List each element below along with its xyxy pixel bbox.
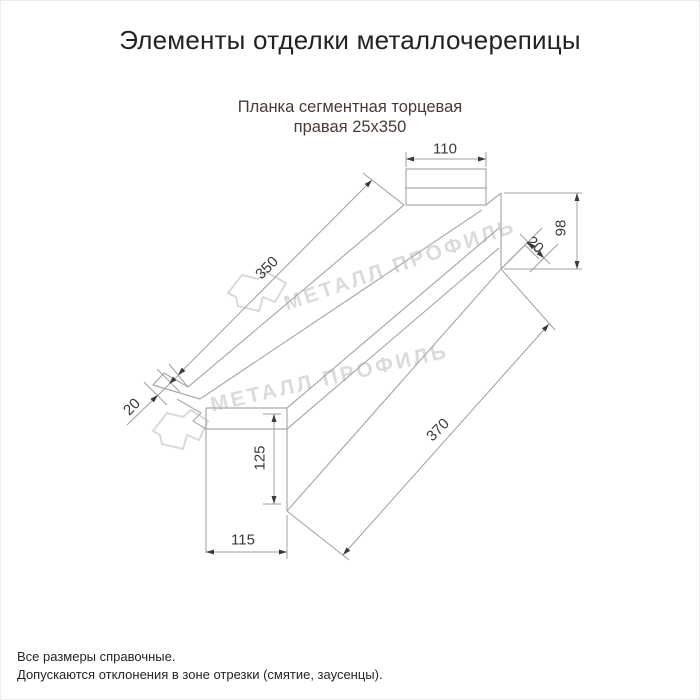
drawing-sheet: Элементы отделки металлочерепицы Планка … (0, 0, 700, 700)
footer-notes: Все размеры справочные. Допускаются откл… (17, 648, 383, 684)
footer-note-1: Все размеры справочные. (17, 648, 383, 666)
dim-right-end-height-label: 98 (553, 220, 570, 237)
dimension-lines (127, 152, 582, 560)
dim-left-end-height-label: 125 (252, 445, 269, 470)
watermark-logo-upper-icon (228, 272, 286, 311)
watermark-logo-lower-icon (153, 410, 208, 449)
dim-top-flange-width-label: 110 (433, 141, 457, 158)
technical-drawing (1, 1, 700, 700)
strip-outline (153, 169, 539, 553)
dimension-arrows (150, 157, 579, 556)
dim-bottom-flange-width-label: 115 (231, 532, 255, 549)
footer-note-2: Допускаются отклонения в зоне отрезки (с… (17, 666, 383, 684)
